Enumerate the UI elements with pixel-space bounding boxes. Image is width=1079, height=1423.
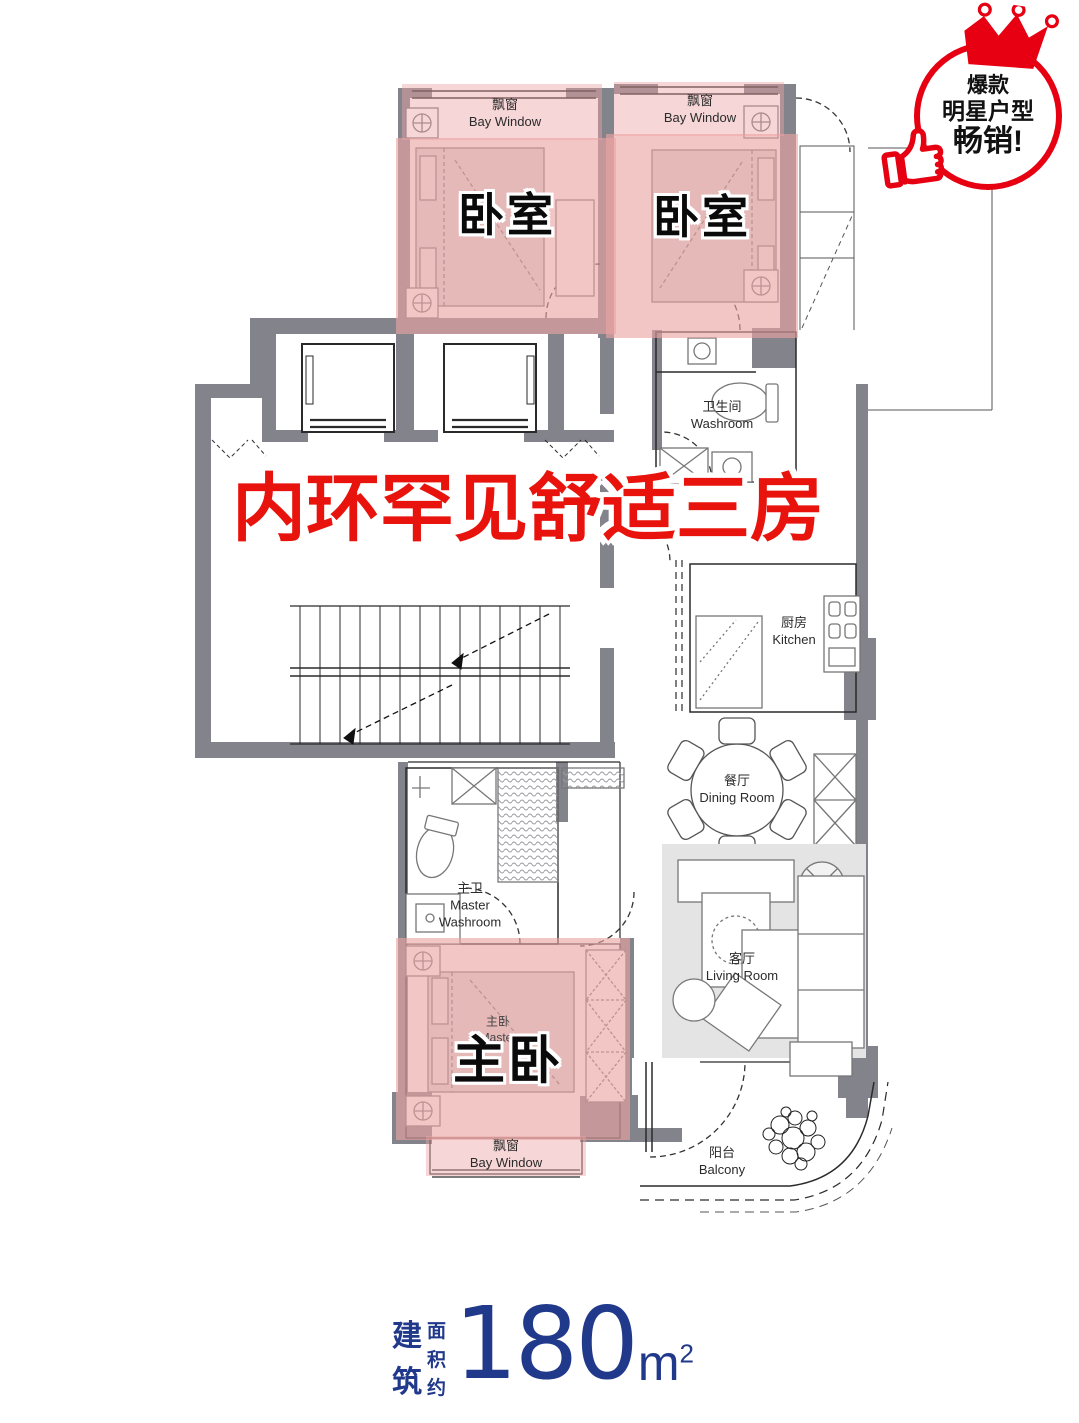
kitchen-zh: 厨房 xyxy=(772,615,815,632)
area-value: 180 xyxy=(454,1296,636,1398)
washroom-label: 卫生间 Washroom xyxy=(691,399,753,433)
floorplan-poster: 飘窗 Bay Window 飘窗 Bay Window 卧室 卧室 卫生间 Wa… xyxy=(0,0,1079,1423)
bay-window-label-left: 飘窗 Bay Window xyxy=(469,97,541,131)
balcony-label: 阳台 Balcony xyxy=(699,1145,745,1179)
washroom-zh: 卫生间 xyxy=(691,399,753,416)
dining-room-label: 餐厅 Dining Room xyxy=(699,773,774,807)
headline: 内环罕见舒适三房 xyxy=(186,466,870,551)
bay-window-label-master: 飘窗 Bay Window xyxy=(470,1138,542,1172)
bay-window-left-zh: 飘窗 xyxy=(469,97,541,114)
balcony-en: Balcony xyxy=(699,1162,745,1179)
bay-window-right-en: Bay Window xyxy=(664,110,736,127)
balcony-zh: 阳台 xyxy=(699,1145,745,1162)
crown-icon xyxy=(943,0,1065,91)
bay-window-master-zh: 飘窗 xyxy=(470,1138,542,1155)
badge-line3: 畅销! xyxy=(953,125,1023,158)
kitchen-en: Kitchen xyxy=(772,632,815,649)
thumbs-up-icon xyxy=(873,111,966,204)
living-room-zh: 客厅 xyxy=(706,951,778,968)
bay-window-right-zh: 飘窗 xyxy=(664,93,736,110)
bay-window-label-right: 飘窗 Bay Window xyxy=(664,93,736,127)
living-room-label: 客厅 Living Room xyxy=(706,951,778,985)
dining-room-zh: 餐厅 xyxy=(699,773,774,790)
master-washroom-zh: 主卫 xyxy=(424,881,516,898)
master-washroom-en: Master Washroom xyxy=(424,898,516,932)
bay-window-master-en: Bay Window xyxy=(470,1155,542,1172)
master-bedroom-label: 主卧 xyxy=(453,1019,563,1094)
area-prefix: 建 筑 面 积 约 xyxy=(392,1322,446,1398)
dining-room-en: Dining Room xyxy=(699,790,774,807)
master-washroom-label: 主卫 Master Washroom xyxy=(424,881,516,932)
kitchen-label: 厨房 Kitchen xyxy=(772,615,815,649)
bay-window-left-en: Bay Window xyxy=(469,114,541,131)
washroom-en: Washroom xyxy=(691,416,753,433)
plant-icon xyxy=(763,1107,825,1170)
area-info: 建 筑 面 积 约 180 m2 xyxy=(392,1296,694,1398)
area-prefix-col2: 面 积 约 xyxy=(427,1322,446,1398)
area-prefix-col1: 建 筑 xyxy=(392,1322,422,1398)
bedroom-right-label: 卧室 xyxy=(653,181,751,247)
badge-line2: 明星户型 xyxy=(942,98,1034,126)
stair-arrows xyxy=(344,614,549,744)
area-unit: m2 xyxy=(638,1334,694,1392)
bedroom-left-label: 卧室 xyxy=(458,179,556,245)
living-room-en: Living Room xyxy=(706,968,778,985)
